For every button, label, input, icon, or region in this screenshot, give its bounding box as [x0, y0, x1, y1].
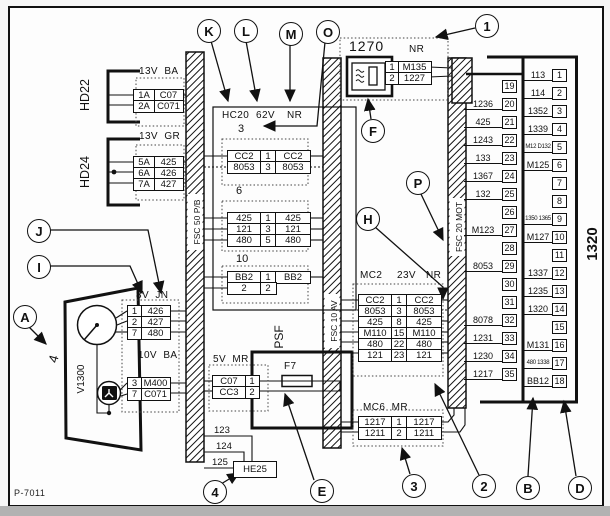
psf-label: PSF	[272, 325, 286, 348]
ecu-inner-pins: 1912362042521124322133231367241322526M12…	[464, 77, 517, 383]
pin-number: 30	[502, 278, 517, 291]
pin-cell: 2A	[133, 100, 155, 113]
wire-label: 1320	[524, 303, 552, 315]
wire-label: M125	[524, 159, 552, 171]
pin-row: 30	[464, 275, 517, 293]
wire-label: 1337	[524, 267, 552, 279]
wire-label: 133	[464, 152, 502, 164]
wire-cell	[275, 282, 311, 295]
pin-row: M12710	[524, 228, 567, 246]
pin-number: 22	[502, 134, 517, 147]
wire-cell: 8053	[227, 161, 261, 174]
pin-row: M13116	[524, 336, 567, 354]
sub6-label: 6	[236, 185, 242, 197]
mc2-nr-header: NR	[426, 270, 441, 281]
mc6-table: 121711217121121211	[358, 416, 442, 440]
wire-cell: 480	[141, 327, 171, 340]
hd22-table: 1AC072AC071	[133, 89, 184, 113]
wire-label: 1230	[464, 350, 502, 362]
plate-code: P-7011	[14, 488, 45, 498]
wire-cell: 121	[406, 349, 442, 362]
pin-number: 25	[502, 188, 517, 201]
wire-cell: C071	[141, 388, 171, 401]
callout-3: 3	[402, 474, 426, 498]
pin-number: 6	[552, 159, 567, 172]
pin-number: 27	[502, 224, 517, 237]
pin-row: M12 D1325	[524, 138, 567, 156]
unit-1270-nr-header: NR	[409, 44, 424, 55]
callout-A: A	[13, 305, 37, 329]
table-row: CC32	[212, 386, 260, 399]
wire-label: M127	[524, 231, 552, 243]
callout-F: F	[361, 119, 385, 143]
pin-cell: 3	[260, 161, 277, 174]
callout-L: L	[234, 19, 258, 43]
callout-K: K	[197, 19, 221, 43]
pin-row: 124322	[464, 131, 517, 149]
pin-number: 14	[552, 303, 567, 316]
unit-a-number: 4	[45, 353, 61, 364]
pin-number: 13	[552, 285, 567, 298]
v1300-label: V1300	[76, 364, 87, 393]
unit-a-8vjn-header: 8V JN	[136, 290, 168, 301]
wire-cell: CC3	[212, 386, 246, 399]
pin-number: 35	[502, 368, 517, 381]
pin-number: 10	[552, 231, 567, 244]
table-row: 12123121	[358, 349, 442, 362]
pin-number: 23	[502, 152, 517, 165]
wire-cell: C071	[154, 100, 184, 113]
pin-row: 26	[464, 203, 517, 221]
hc20-sub10-table: BB21BB222	[227, 271, 311, 295]
unit-a-10vba-header: 10V BA	[138, 350, 178, 361]
callout-D: D	[568, 476, 592, 500]
pin-row: 13225	[464, 185, 517, 203]
fuse-f7-label: F7	[284, 361, 296, 372]
wire-cell: 480	[275, 234, 311, 247]
pin-cell: 5	[260, 234, 277, 247]
wire-label: M12 D132	[524, 141, 552, 153]
pin-row: 807832	[464, 311, 517, 329]
ecu-1320-label: 1320	[584, 227, 601, 260]
wire-cell: 1211	[358, 427, 392, 440]
wire-label: 425	[464, 116, 502, 128]
motor-symbol	[98, 382, 121, 405]
sub10-label: 10	[236, 253, 248, 265]
wire-124-label: 124	[216, 441, 232, 452]
pin-row: 1131	[524, 66, 567, 84]
wire-label: 1236	[464, 98, 502, 110]
pin-row: 11	[524, 246, 567, 264]
callout-2: 2	[472, 474, 496, 498]
wire-label	[464, 297, 502, 308]
wire-label: 113	[524, 69, 552, 81]
callout-O: O	[316, 20, 340, 44]
table-row: 4805480	[227, 234, 311, 247]
wiring-lines-layer: FSC 50 P/B FSC 10 AV FSC 20 MOT 1320	[0, 0, 610, 516]
callout-B: B	[516, 476, 540, 500]
pin-number: 28	[502, 242, 517, 255]
table-row: 7C071	[127, 388, 171, 401]
pin-cell: 2	[260, 282, 277, 295]
pin-number: 31	[502, 296, 517, 309]
he25-box: HE25	[233, 461, 277, 478]
pin-row: 13323	[464, 149, 517, 167]
wire-cell: 1227	[398, 72, 432, 85]
wire-label: 132	[464, 188, 502, 200]
wire-label: 8053	[464, 260, 502, 272]
pin-row: 15	[524, 318, 567, 336]
hd24-label: HD24	[78, 156, 92, 188]
wire-label: 1350 1365	[524, 213, 552, 225]
wire-cell: 2	[227, 282, 261, 295]
mc2-23v-header: 23V	[397, 270, 416, 281]
pin-number: 26	[502, 206, 517, 219]
wire-label: BB12	[524, 375, 552, 387]
pin-row: 121735	[464, 365, 517, 383]
pin-row: 1350 13659	[524, 210, 567, 228]
callout-4: 4	[203, 480, 227, 504]
hc20-nr-header: NR	[287, 110, 302, 121]
pin-row: 13394	[524, 120, 567, 138]
pin-row: 123133	[464, 329, 517, 347]
pin-number: 15	[552, 321, 567, 334]
pin-row: M1256	[524, 156, 567, 174]
hd24-voltage-header: 13V GR	[139, 131, 180, 142]
pin-number: 4	[552, 123, 567, 136]
wire-label: 1367	[464, 170, 502, 182]
wire-cell: 427	[154, 178, 184, 191]
pin-row: 28	[464, 239, 517, 257]
wire-label	[464, 243, 502, 254]
wire-label	[524, 322, 552, 333]
bus-fsc10-label: FSC 10 AV	[329, 300, 339, 342]
callout-E: E	[310, 479, 334, 503]
pin-row: 19	[464, 77, 517, 95]
pin-number: 32	[502, 314, 517, 327]
pin-number: 20	[502, 98, 517, 111]
mc2-table: CC21CC28053380534258425M11015M1104802248…	[358, 294, 442, 362]
wire-label	[464, 207, 502, 218]
pin-number: 12	[552, 267, 567, 280]
pin-row: 1142	[524, 84, 567, 102]
pin-row: 123513	[524, 282, 567, 300]
pin-cell: 23	[391, 349, 408, 362]
pin-number: 29	[502, 260, 517, 273]
wire-label	[524, 250, 552, 261]
wire-cell: 121	[358, 349, 392, 362]
callout-H: H	[356, 207, 380, 231]
wire-label	[464, 279, 502, 290]
hd22-label: HD22	[78, 79, 92, 111]
bus-fsc20-label: FSC 20 MOT	[454, 202, 464, 252]
wire-label	[464, 81, 502, 92]
pin-number: 3	[552, 105, 567, 118]
callout-I: I	[27, 255, 51, 279]
hd24-table: 5A4256A4267A427	[133, 156, 184, 191]
wire-label: M123	[464, 224, 502, 236]
pin-number: 7	[552, 177, 567, 190]
wire-label: 1231	[464, 332, 502, 344]
pin-number: 17	[552, 357, 567, 370]
wire-label	[524, 196, 552, 207]
wire-label: 1217	[464, 368, 502, 380]
pin-row: 13523	[524, 102, 567, 120]
wire-123-label: 123	[214, 425, 230, 436]
pin-number: 33	[502, 332, 517, 345]
unit-1270-table: 1M13521227	[385, 61, 432, 85]
table-row: 2AC071	[133, 100, 184, 113]
table-row: 21227	[385, 72, 432, 85]
pin-cell: 2	[245, 386, 260, 399]
wire-label: 1352	[524, 105, 552, 117]
pin-number: 21	[502, 116, 517, 129]
bus-fsc50-label: FSC 50 P/B	[192, 199, 202, 244]
table-row: 121121211	[358, 427, 442, 440]
scan-edge-strip	[0, 506, 610, 516]
wire-label: 480 1338	[524, 357, 552, 369]
mc2-header: MC2	[360, 270, 382, 281]
fuse-f7-symbol	[282, 376, 312, 387]
pin-row: 132014	[524, 300, 567, 318]
callout-P: P	[406, 171, 430, 195]
wire-125-label: 125	[212, 457, 228, 468]
pin-number: 11	[552, 249, 567, 262]
table-row: 7A427	[133, 178, 184, 191]
callout-1: 1	[475, 14, 499, 38]
wire-label: 1235	[524, 285, 552, 297]
hc20-header: HC20	[222, 110, 249, 121]
wire-label: 114	[524, 87, 552, 99]
pin-row: 480 133817	[524, 354, 567, 372]
hc20-sub6-table: 425142512131214805480	[227, 212, 311, 247]
pin-number: 1	[552, 69, 567, 82]
callout-J: J	[27, 219, 51, 243]
wire-label: 1243	[464, 134, 502, 146]
wire-cell: 8053	[275, 161, 311, 174]
pin-row: M12327	[464, 221, 517, 239]
pin-number: 16	[552, 339, 567, 352]
wire-cell: 480	[227, 234, 261, 247]
pin-row: 133712	[524, 264, 567, 282]
pin-cell: 2	[391, 427, 408, 440]
pin-number: 2	[552, 87, 567, 100]
wire-label: 1339	[524, 123, 552, 135]
wire-label	[524, 178, 552, 189]
pin-number: 9	[552, 213, 567, 226]
table-row: 805338053	[227, 161, 311, 174]
pin-row: BB1218	[524, 372, 567, 390]
pin-number: 34	[502, 350, 517, 363]
hc20-sub3-table: CC21CC2805338053	[227, 150, 311, 174]
pin-number: 19	[502, 80, 517, 93]
ecu-outer-pins: 113111421352313394M12 D1325M1256781350 1…	[524, 66, 567, 390]
table-row: 7480	[127, 327, 171, 340]
pin-row: 31	[464, 293, 517, 311]
mc6-header: MC6 MR	[363, 402, 408, 413]
pin-row: 8	[524, 192, 567, 210]
pin-number: 5	[552, 141, 567, 154]
pin-row: 805329	[464, 257, 517, 275]
pin-number: 18	[552, 375, 567, 388]
psf-table: C071CC32	[212, 375, 260, 399]
pin-cell: 7A	[133, 178, 155, 191]
unit-a-10vba-table: 3M4007C071	[127, 377, 171, 401]
pin-row: 123034	[464, 347, 517, 365]
pin-number: 24	[502, 170, 517, 183]
sub3-label: 3	[238, 123, 244, 135]
wire-label: 8078	[464, 314, 502, 326]
pin-row: 136724	[464, 167, 517, 185]
pin-row: 7	[524, 174, 567, 192]
callout-M: M	[279, 22, 303, 46]
wire-cell: 1211	[406, 427, 442, 440]
pin-row: 42521	[464, 113, 517, 131]
wiring-diagram-page: FSC 50 P/B FSC 10 AV FSC 20 MOT 1320	[0, 0, 610, 516]
psf-5vmr-header: 5V MR	[213, 354, 249, 365]
pin-row: 123620	[464, 95, 517, 113]
hc20-62v-header: 62V	[256, 110, 275, 121]
unit-1270-title: 1270	[349, 38, 384, 54]
unit-a-8vjn-table: 142624277480	[127, 305, 171, 340]
pin-number: 8	[552, 195, 567, 208]
wire-label: M131	[524, 339, 552, 351]
table-row: 22	[227, 282, 311, 295]
gauge-symbol	[78, 306, 117, 345]
hd22-voltage-header: 13V BA	[139, 66, 179, 77]
